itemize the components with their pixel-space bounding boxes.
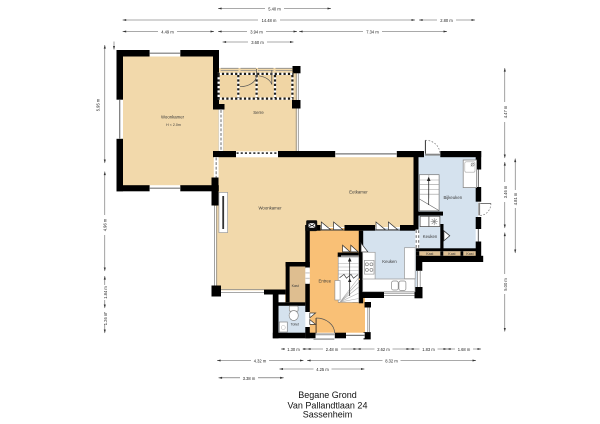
svg-text:Begane Grond: Begane Grond: [298, 390, 357, 400]
svg-text:Keuken: Keuken: [423, 234, 438, 239]
svg-text:5.40 m: 5.40 m: [268, 7, 281, 12]
svg-text:4.81 m: 4.81 m: [513, 192, 518, 205]
svg-text:Kast: Kast: [426, 252, 433, 256]
svg-text:4.32 m: 4.32 m: [254, 359, 267, 364]
svg-text:Eetkamer: Eetkamer: [349, 190, 368, 195]
svg-text:H < 2.0m: H < 2.0m: [166, 123, 181, 127]
svg-text:Kast: Kast: [292, 284, 299, 288]
svg-text:3.94 m: 3.94 m: [250, 30, 263, 35]
svg-text:5.00 m: 5.00 m: [503, 278, 508, 291]
svg-text:Woonkamer: Woonkamer: [161, 115, 185, 120]
svg-text:4.49 m: 4.49 m: [161, 30, 174, 35]
svg-text:1.68 m: 1.68 m: [458, 347, 471, 352]
svg-text:2.48 m: 2.48 m: [326, 347, 339, 352]
svg-text:2.80 m: 2.80 m: [440, 18, 453, 23]
svg-text:14.48 m: 14.48 m: [262, 18, 277, 23]
svg-text:Serre: Serre: [253, 110, 264, 115]
svg-text:7.34 m: 7.34 m: [366, 30, 379, 35]
svg-text:4.96 m: 4.96 m: [102, 218, 107, 231]
svg-text:Toilet: Toilet: [291, 323, 299, 327]
svg-text:3.46 m: 3.46 m: [503, 185, 508, 198]
svg-text:4.47 m: 4.47 m: [503, 105, 508, 118]
svg-text:Kast: Kast: [466, 252, 473, 256]
svg-text:3.60 m: 3.60 m: [251, 40, 264, 45]
svg-text:Bijkeuken: Bijkeuken: [443, 195, 462, 200]
svg-text:3.38 m: 3.38 m: [243, 376, 256, 381]
svg-text:4.25 m: 4.25 m: [316, 367, 329, 372]
svg-text:Keuken: Keuken: [382, 259, 397, 264]
svg-text:Woonkamer: Woonkamer: [258, 206, 282, 211]
svg-text:8.32 m: 8.32 m: [385, 359, 398, 364]
svg-text:1.30 m: 1.30 m: [287, 347, 300, 352]
svg-text:5.95 m: 5.95 m: [96, 98, 101, 111]
svg-text:Sassenheim: Sassenheim: [303, 409, 353, 419]
svg-text:2.62 m: 2.62 m: [377, 347, 390, 352]
svg-text:Entree: Entree: [318, 278, 331, 283]
svg-text:Kast: Kast: [448, 252, 455, 256]
svg-text:1.26 m: 1.26 m: [103, 312, 108, 325]
svg-text:1.84 m: 1.84 m: [103, 286, 108, 299]
svg-text:1.83 m: 1.83 m: [422, 347, 435, 352]
